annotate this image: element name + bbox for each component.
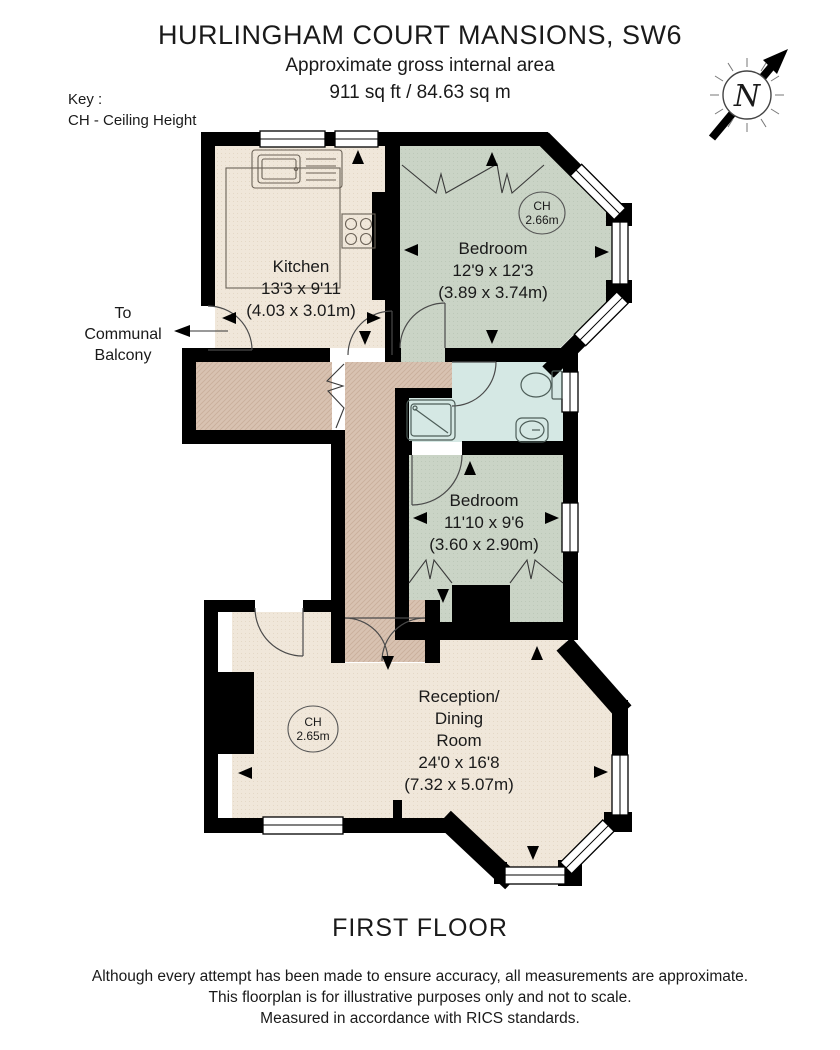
key-block: Key : CH - Ceiling Height (68, 91, 197, 129)
kitchen-name: Kitchen (273, 257, 330, 276)
floorplan-canvas: HURLINGHAM COURT MANSIONS, SW6 Approxima… (0, 0, 840, 1050)
page-title: HURLINGHAM COURT MANSIONS, SW6 (158, 20, 682, 50)
bedroom2-window (562, 503, 578, 552)
bedroom2-dims-metric: (3.60 x 2.90m) (429, 535, 539, 554)
disclaimer-line3: Measured in accordance with RICS standar… (260, 1010, 580, 1027)
bathroom-window (562, 372, 578, 412)
key-ceiling-height: CH - Ceiling Height (68, 112, 197, 129)
kitchen-dims-imperial: 13'3 x 9'11 (261, 279, 341, 298)
reception-ch-label: CH (304, 715, 321, 729)
reception-window-left (263, 817, 343, 834)
bedroom1-name: Bedroom (459, 239, 528, 258)
kitchen-window-2 (335, 131, 378, 147)
reception-name-line1: Reception/ (418, 687, 500, 706)
reception-dims-imperial: 24'0 x 16'8 (418, 753, 499, 772)
balcony-note-line1: To (115, 305, 132, 322)
floorplan-page: HURLINGHAM COURT MANSIONS, SW6 Approxima… (0, 0, 840, 1050)
balcony-note-line2: Communal (84, 326, 161, 343)
bedroom1-ch-label: CH (533, 199, 550, 213)
disclaimer-line1: Although every attempt has been made to … (92, 968, 748, 985)
bathroom-floor (452, 362, 563, 442)
bedroom1-dims-metric: (3.89 x 3.74m) (438, 283, 548, 302)
balcony-note-line3: Balcony (95, 347, 152, 364)
footer: FIRST FLOOR Although every attempt has b… (92, 914, 748, 1027)
reception-name-line2: Dining (435, 709, 483, 728)
reception-name-line3: Room (436, 731, 481, 750)
compass-north-label: N (733, 79, 762, 114)
key-label: Key : (68, 91, 102, 108)
bedroom1-dims-imperial: 12'9 x 12'3 (452, 261, 533, 280)
floor-label: FIRST FLOOR (332, 914, 508, 942)
disclaimer-line2: This floorplan is for illustrative purpo… (208, 989, 631, 1006)
bedroom2-name: Bedroom (450, 491, 519, 510)
page-subtitle: Approximate gross internal area (285, 55, 555, 76)
hall-storage-floor (196, 362, 332, 430)
north-compass: N (710, 49, 788, 138)
reception-dims-metric: (7.32 x 5.07m) (404, 775, 514, 794)
reception-bay-window-bottom (505, 867, 565, 884)
kitchen-window-1 (260, 131, 325, 147)
reception-bay-window-right (612, 755, 628, 815)
bedroom1-ch-value: 2.66m (525, 213, 558, 227)
bedroom2-dims-imperial: 11'10 x 9'6 (444, 513, 524, 532)
page-area: 911 sq ft / 84.63 sq m (329, 82, 510, 103)
bedroom1-bay-window-middle (612, 222, 628, 284)
bedroom2-wardrobe-right-floor (510, 585, 563, 622)
header: HURLINGHAM COURT MANSIONS, SW6 Approxima… (158, 20, 682, 103)
reception-ch-value: 2.65m (296, 729, 329, 743)
kitchen-dims-metric: (4.03 x 3.01m) (246, 301, 356, 320)
balcony-arrow-icon (174, 325, 190, 337)
hall-column-floor (345, 398, 395, 605)
